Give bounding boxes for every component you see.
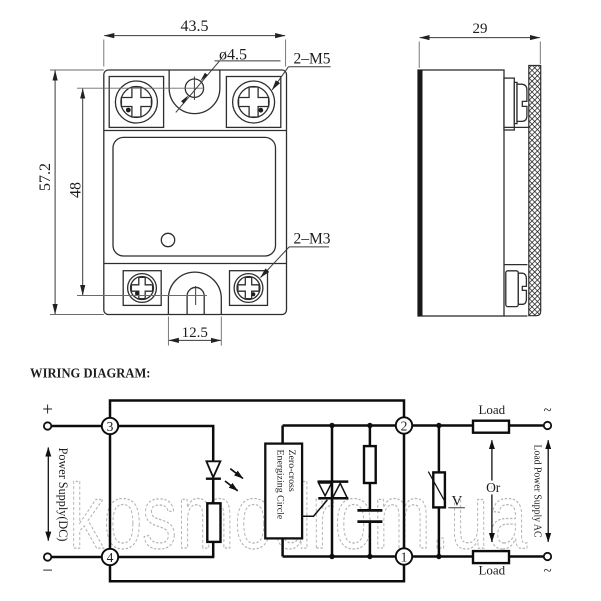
svg-text:+: + — [42, 400, 53, 421]
svg-text:12.5: 12.5 — [182, 325, 208, 341]
svg-text:43.5: 43.5 — [181, 18, 209, 35]
svg-text:Load: Load — [478, 563, 505, 578]
svg-text:V: V — [452, 494, 463, 510]
svg-text:2: 2 — [401, 418, 408, 433]
svg-text:Power Supply(DC): Power Supply(DC) — [56, 448, 70, 542]
svg-text:48: 48 — [67, 182, 84, 198]
svg-text:~: ~ — [543, 564, 551, 580]
svg-text:Load Power Supply AC: Load Power Supply AC — [532, 445, 544, 538]
svg-text:29: 29 — [473, 21, 488, 37]
svg-text:−: − — [42, 561, 53, 582]
svg-text:2–M3: 2–M3 — [294, 231, 331, 248]
svg-text:4: 4 — [107, 550, 114, 565]
svg-text:~: ~ — [543, 403, 551, 419]
svg-text:2–M5: 2–M5 — [294, 51, 331, 68]
svg-text:Or: Or — [486, 480, 501, 495]
svg-text:1: 1 — [401, 549, 408, 564]
svg-text:57.2: 57.2 — [37, 163, 54, 191]
svg-text:WIRING DIAGRAM:: WIRING DIAGRAM: — [30, 366, 151, 381]
svg-text:3: 3 — [107, 419, 114, 434]
svg-text:Load: Load — [478, 402, 505, 417]
svg-text:ø4.5: ø4.5 — [219, 47, 247, 64]
